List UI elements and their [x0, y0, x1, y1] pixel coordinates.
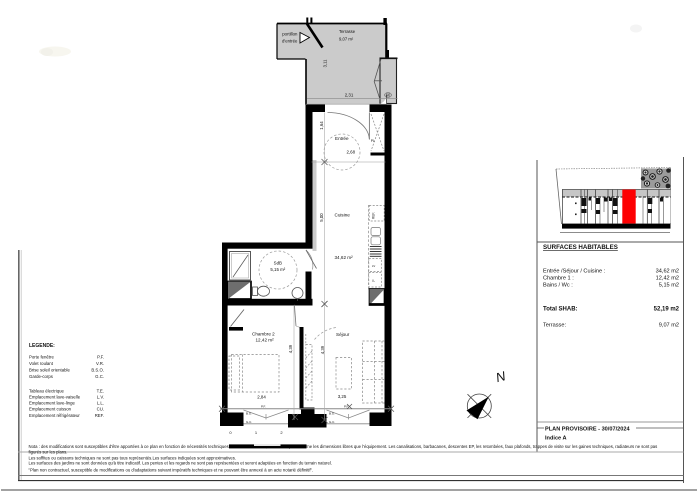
svg-text:SdB: SdB	[274, 260, 282, 265]
svg-text:CU.: CU.	[97, 407, 104, 412]
svg-text:P.F.: P.F.	[97, 355, 104, 360]
svg-text:P.F.: P.F.	[261, 405, 266, 409]
svg-text:4,39: 4,39	[320, 345, 325, 354]
svg-text:PLAN PROVISOIRE - 30/07/2024: PLAN PROVISOIRE - 30/07/2024	[545, 427, 630, 433]
svg-text:Emplacement lave-vaiselle: Emplacement lave-vaiselle	[29, 394, 81, 399]
svg-text:"Plan non contractuel, suscept: "Plan non contractuel, susceptible de mo…	[29, 468, 314, 473]
svg-text:1,64: 1,64	[319, 121, 324, 130]
svg-text:REF.: REF.	[372, 212, 376, 219]
svg-text:Porte fenêtre: Porte fenêtre	[29, 355, 54, 360]
svg-text:L.L.: L.L.	[97, 401, 104, 406]
svg-text:9,07 m²: 9,07 m²	[339, 37, 354, 42]
svg-text:52,19 m2: 52,19 m2	[654, 307, 680, 313]
svg-text:PL: PL	[371, 139, 375, 143]
svg-text:9,07 m2: 9,07 m2	[659, 323, 679, 329]
svg-text:12,42 m2: 12,42 m2	[656, 276, 679, 282]
svg-text:3,25: 3,25	[338, 394, 347, 399]
svg-text:34,62 m2: 34,62 m2	[656, 269, 679, 275]
svg-text:portillon: portillon	[282, 32, 298, 37]
svg-text:Séjour: Séjour	[336, 332, 350, 337]
svg-text:5,15 m²: 5,15 m²	[270, 267, 285, 272]
svg-text:G.C.: G.C.	[95, 374, 104, 379]
svg-text:Bains / Wc :: Bains / Wc :	[543, 283, 573, 289]
svg-text:Terrasse: Terrasse	[339, 29, 356, 34]
svg-text:LEGENDE:: LEGENDE:	[29, 343, 55, 349]
svg-text:Entrée /Séjour / Cuisine :: Entrée /Séjour / Cuisine :	[543, 269, 606, 275]
svg-text:2,31: 2,31	[345, 92, 354, 97]
svg-text:5,00: 5,00	[319, 213, 324, 222]
svg-text:5,15 m2: 5,15 m2	[659, 283, 679, 289]
svg-text:P.F.: P.F.	[344, 405, 349, 409]
svg-text:Chambre 2: Chambre 2	[252, 331, 275, 336]
svg-text:d'entrée: d'entrée	[282, 39, 298, 44]
svg-text:3,11: 3,11	[323, 59, 328, 68]
svg-text:Indice A: Indice A	[545, 436, 567, 442]
svg-text:Emplacement lave-linge: Emplacement lave-linge	[29, 401, 75, 406]
svg-text:B.S.: B.S.	[246, 412, 252, 416]
svg-text:figurés sur les plans.: figurés sur les plans.	[29, 450, 68, 455]
svg-text:B.S.O.: B.S.O.	[91, 368, 104, 373]
svg-text:REF.: REF.	[95, 413, 104, 418]
svg-text:Brise soleil orientable: Brise soleil orientable	[29, 368, 70, 373]
svg-text:G.C.: G.C.	[329, 420, 335, 424]
svg-text:Volet roulant: Volet roulant	[29, 361, 54, 366]
svg-text:Entrée: Entrée	[335, 136, 349, 141]
svg-text:B.S.: B.S.	[329, 412, 335, 416]
svg-text:Chambre 1 :: Chambre 1 :	[543, 276, 574, 282]
svg-text:2,68: 2,68	[347, 149, 356, 154]
svg-text:Total SHAB:: Total SHAB:	[543, 307, 578, 313]
svg-text:Les surfaces des jardins ne so: Les surfaces des jardins ne sont données…	[29, 461, 332, 466]
svg-text:Tableau électrique: Tableau électrique	[29, 388, 64, 393]
svg-text:34,62 m²: 34,62 m²	[335, 255, 354, 260]
svg-text:12,42 m²: 12,42 m²	[256, 338, 275, 343]
svg-text:2,84: 2,84	[257, 394, 266, 399]
svg-text:LL: LL	[372, 279, 376, 283]
svg-text:Emplacement réfrigérateur: Emplacement réfrigérateur	[29, 413, 80, 418]
svg-text:LV: LV	[372, 264, 375, 268]
svg-text:Nota : des modifications sont: Nota : des modifications sont susceptibl…	[29, 444, 658, 449]
svg-text:V.R.: V.R.	[96, 361, 104, 366]
svg-text:T.E.: T.E.	[97, 388, 104, 393]
svg-text:Terrasse:: Terrasse:	[543, 323, 566, 329]
svg-text:Emplacement cuisson: Emplacement cuisson	[29, 407, 72, 412]
svg-text:Garde-corps: Garde-corps	[29, 374, 53, 379]
svg-text:4,39: 4,39	[288, 344, 293, 353]
svg-text:SURFACES HABITABLES: SURFACES HABITABLES	[543, 244, 618, 251]
svg-text:G.C.: G.C.	[246, 420, 252, 424]
svg-text:L.V.: L.V.	[97, 394, 104, 399]
svg-text:Cuisine: Cuisine	[335, 213, 351, 218]
